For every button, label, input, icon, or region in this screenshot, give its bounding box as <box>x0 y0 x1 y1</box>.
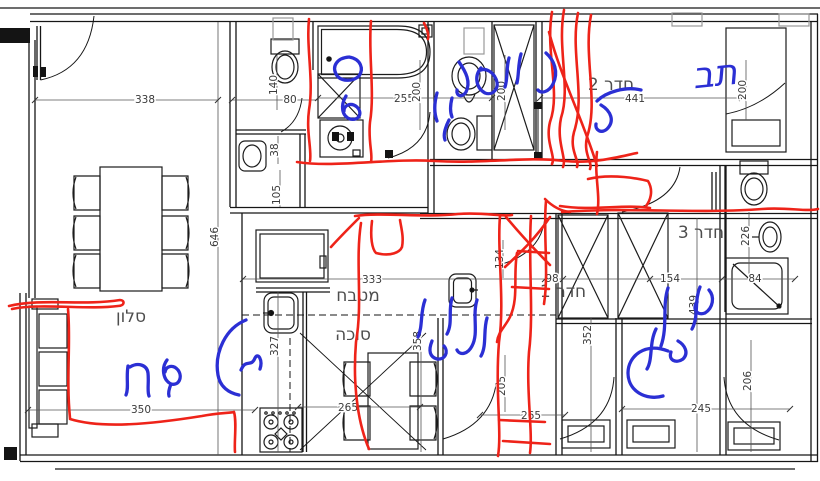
dimension-ticks <box>25 95 798 418</box>
dimension-value: 265 <box>338 402 358 414</box>
red-marker-stroke <box>331 218 359 247</box>
blue-pen-stroke <box>447 298 452 334</box>
dimension-value: 245 <box>691 403 711 415</box>
wc-sink <box>239 141 266 171</box>
room-label: סוכה <box>335 325 371 345</box>
dimension-value: 38 <box>269 143 281 156</box>
furniture <box>29 25 788 452</box>
dimension-value: 84 <box>748 273 762 285</box>
blue-pen-stroke <box>241 356 261 370</box>
kitchen-sink <box>263 293 298 333</box>
blue-pen-stroke <box>596 105 611 131</box>
dimension-value: 646 <box>209 227 221 247</box>
blue-pen-stroke <box>457 300 477 353</box>
red-marker-stroke <box>297 153 637 164</box>
dimension-value: 327 <box>269 336 281 356</box>
dimension-value: 154 <box>660 273 680 285</box>
room-label: חדר 3 <box>678 223 724 243</box>
door-swing-arcs <box>41 16 786 440</box>
closet-bottom-left <box>558 215 608 318</box>
red-marker-stroke <box>308 19 311 161</box>
washing-machine <box>320 120 363 157</box>
blue-pen-stroke <box>628 348 668 397</box>
sofa <box>29 299 67 437</box>
bathtub-drain <box>327 57 331 61</box>
dimension-value: 140 <box>268 75 280 95</box>
dining-chairs <box>73 176 189 288</box>
dining-table <box>100 167 162 291</box>
red-marker-stroke <box>560 10 565 167</box>
sukkah-dashed-boundary <box>242 315 556 452</box>
handwritten-note: תב <box>691 52 740 97</box>
blue-pen-stroke <box>435 93 437 121</box>
blue-pen-stroke <box>451 98 453 117</box>
handwritten-text: תב <box>691 52 740 97</box>
dimension-value: 200 <box>737 80 749 100</box>
red-marker-stroke <box>370 21 372 162</box>
dimension-value: 333 <box>362 274 382 286</box>
blue-pen-stroke <box>481 318 487 356</box>
blue-pen-stroke <box>164 360 181 384</box>
red-marker-stroke <box>562 209 818 212</box>
dimension-value: 206 <box>742 371 754 391</box>
red-marker-stroke <box>503 441 550 444</box>
dimension-value: 352 <box>582 325 594 345</box>
blue-pen-stroke <box>130 365 149 396</box>
toilet-middle-bath <box>447 116 492 150</box>
dimension-value: 80 <box>283 94 296 106</box>
oval-sink-room3 <box>752 222 781 252</box>
shafts <box>273 13 809 54</box>
floor-plan-drawing: 3381408025520020044120038105646333981548… <box>0 0 820 481</box>
blue-pen-stroke <box>335 57 362 80</box>
dimension-value: 226 <box>740 226 752 246</box>
blue-pen-stroke <box>126 366 128 395</box>
dimension-value: 338 <box>135 94 155 106</box>
dimension-value: 200 <box>411 82 423 102</box>
kitchen-upper-cabinet <box>256 230 328 282</box>
red-marker-stroke <box>560 206 650 208</box>
blue-pen-stroke <box>169 384 171 396</box>
blue-pen-stroke <box>444 120 449 140</box>
red-marker-stroke <box>68 309 70 418</box>
blue-pen-stroke <box>670 341 686 361</box>
red-marker-stroke <box>70 412 235 452</box>
dimension-value: 350 <box>131 404 151 416</box>
red-marker-stroke <box>371 220 402 254</box>
stove <box>260 408 302 452</box>
red-marker-stroke <box>573 13 579 167</box>
dimension-value: 105 <box>271 185 283 205</box>
closet-bottom-right <box>618 213 668 318</box>
floor-plan-page: 3381408025520020044120038105646333981548… <box>0 0 820 481</box>
toilet-room3 <box>740 161 768 205</box>
shower-room3 <box>726 258 788 314</box>
room-label: סלון <box>116 307 146 327</box>
